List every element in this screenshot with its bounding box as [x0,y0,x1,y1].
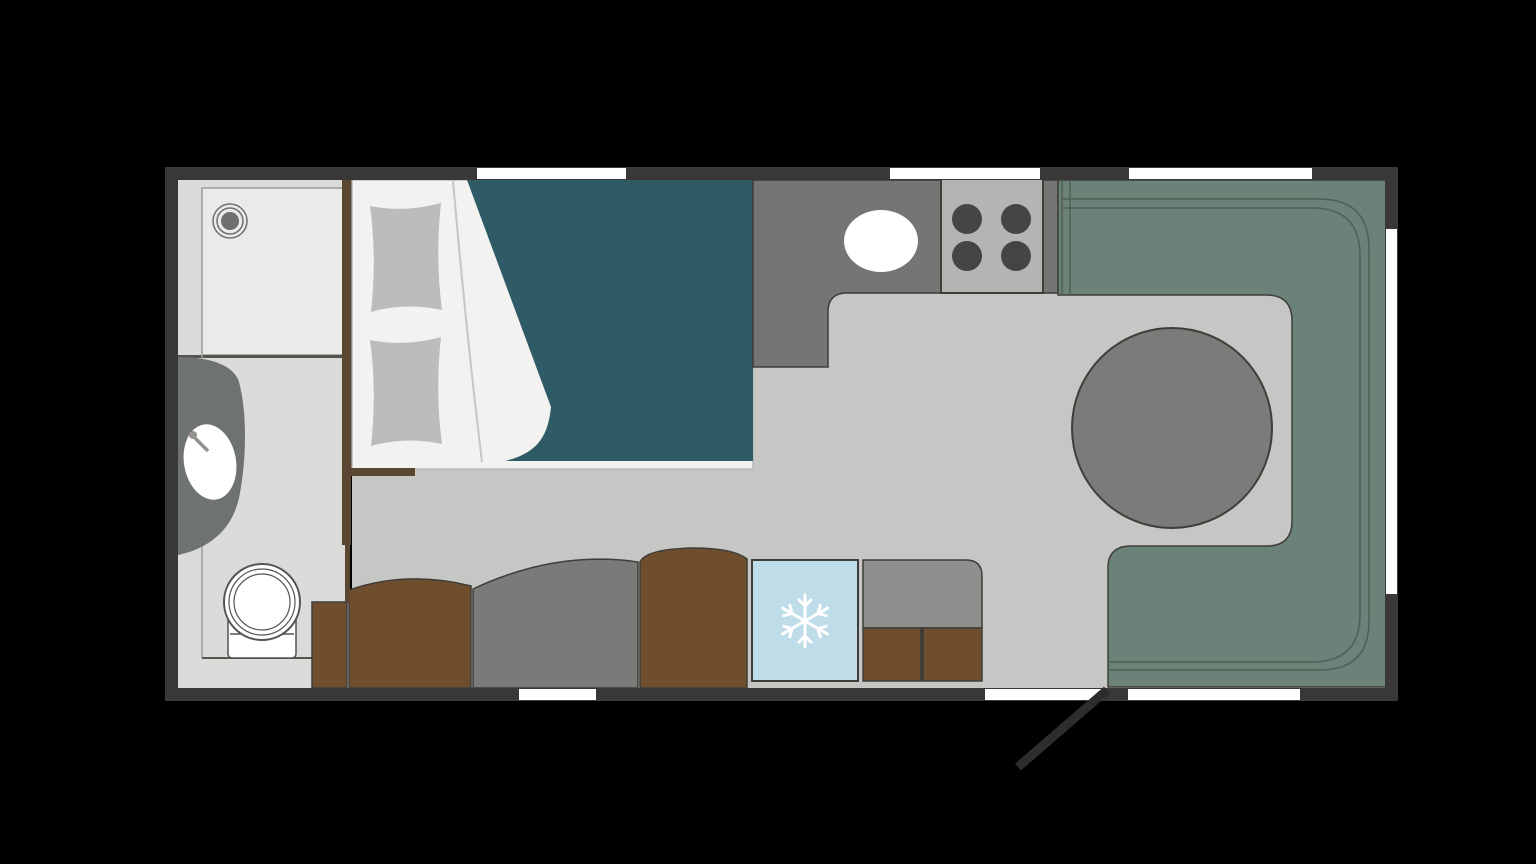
bed-foot-wall-stub [351,468,415,476]
partition-wall-lower [345,545,350,603]
shower-tray [202,188,344,355]
toilet-bowl [224,564,300,640]
pillow-bottom [370,337,442,446]
window-right [1386,229,1397,594]
window-bottom-dinette [1128,689,1300,700]
burner-bottom-right [1001,241,1031,271]
shower-drain [221,212,239,230]
burner-top-right [1001,204,1031,234]
kitchen-sink [844,210,918,272]
cushion-gray-middle [473,559,638,688]
entrance-door-opening [985,689,1103,700]
cushion-brown-right [640,548,747,688]
wall-left [165,167,178,701]
hob [941,178,1043,293]
dinette [1058,180,1387,687]
refrigerator [752,560,858,681]
pillow-top [370,203,442,312]
burner-bottom-left [952,241,982,271]
window-bottom-bench [519,689,596,700]
wardrobe-unit [863,560,982,681]
seat-end-block [312,602,347,688]
double-bed [352,180,753,469]
cushion-brown-left [349,579,471,688]
caravan-floor-plan [0,0,1536,864]
burner-top-left [952,204,982,234]
bathroom-partition-wall [342,180,351,545]
window-top-kitchen [890,168,1040,179]
window-top-bed [477,168,626,179]
window-top-dinette [1129,168,1312,179]
bathroom-divider-wall [178,355,346,358]
floor-plan-canvas [0,0,1536,864]
round-table [1072,328,1272,528]
wardrobe-top [863,560,982,628]
